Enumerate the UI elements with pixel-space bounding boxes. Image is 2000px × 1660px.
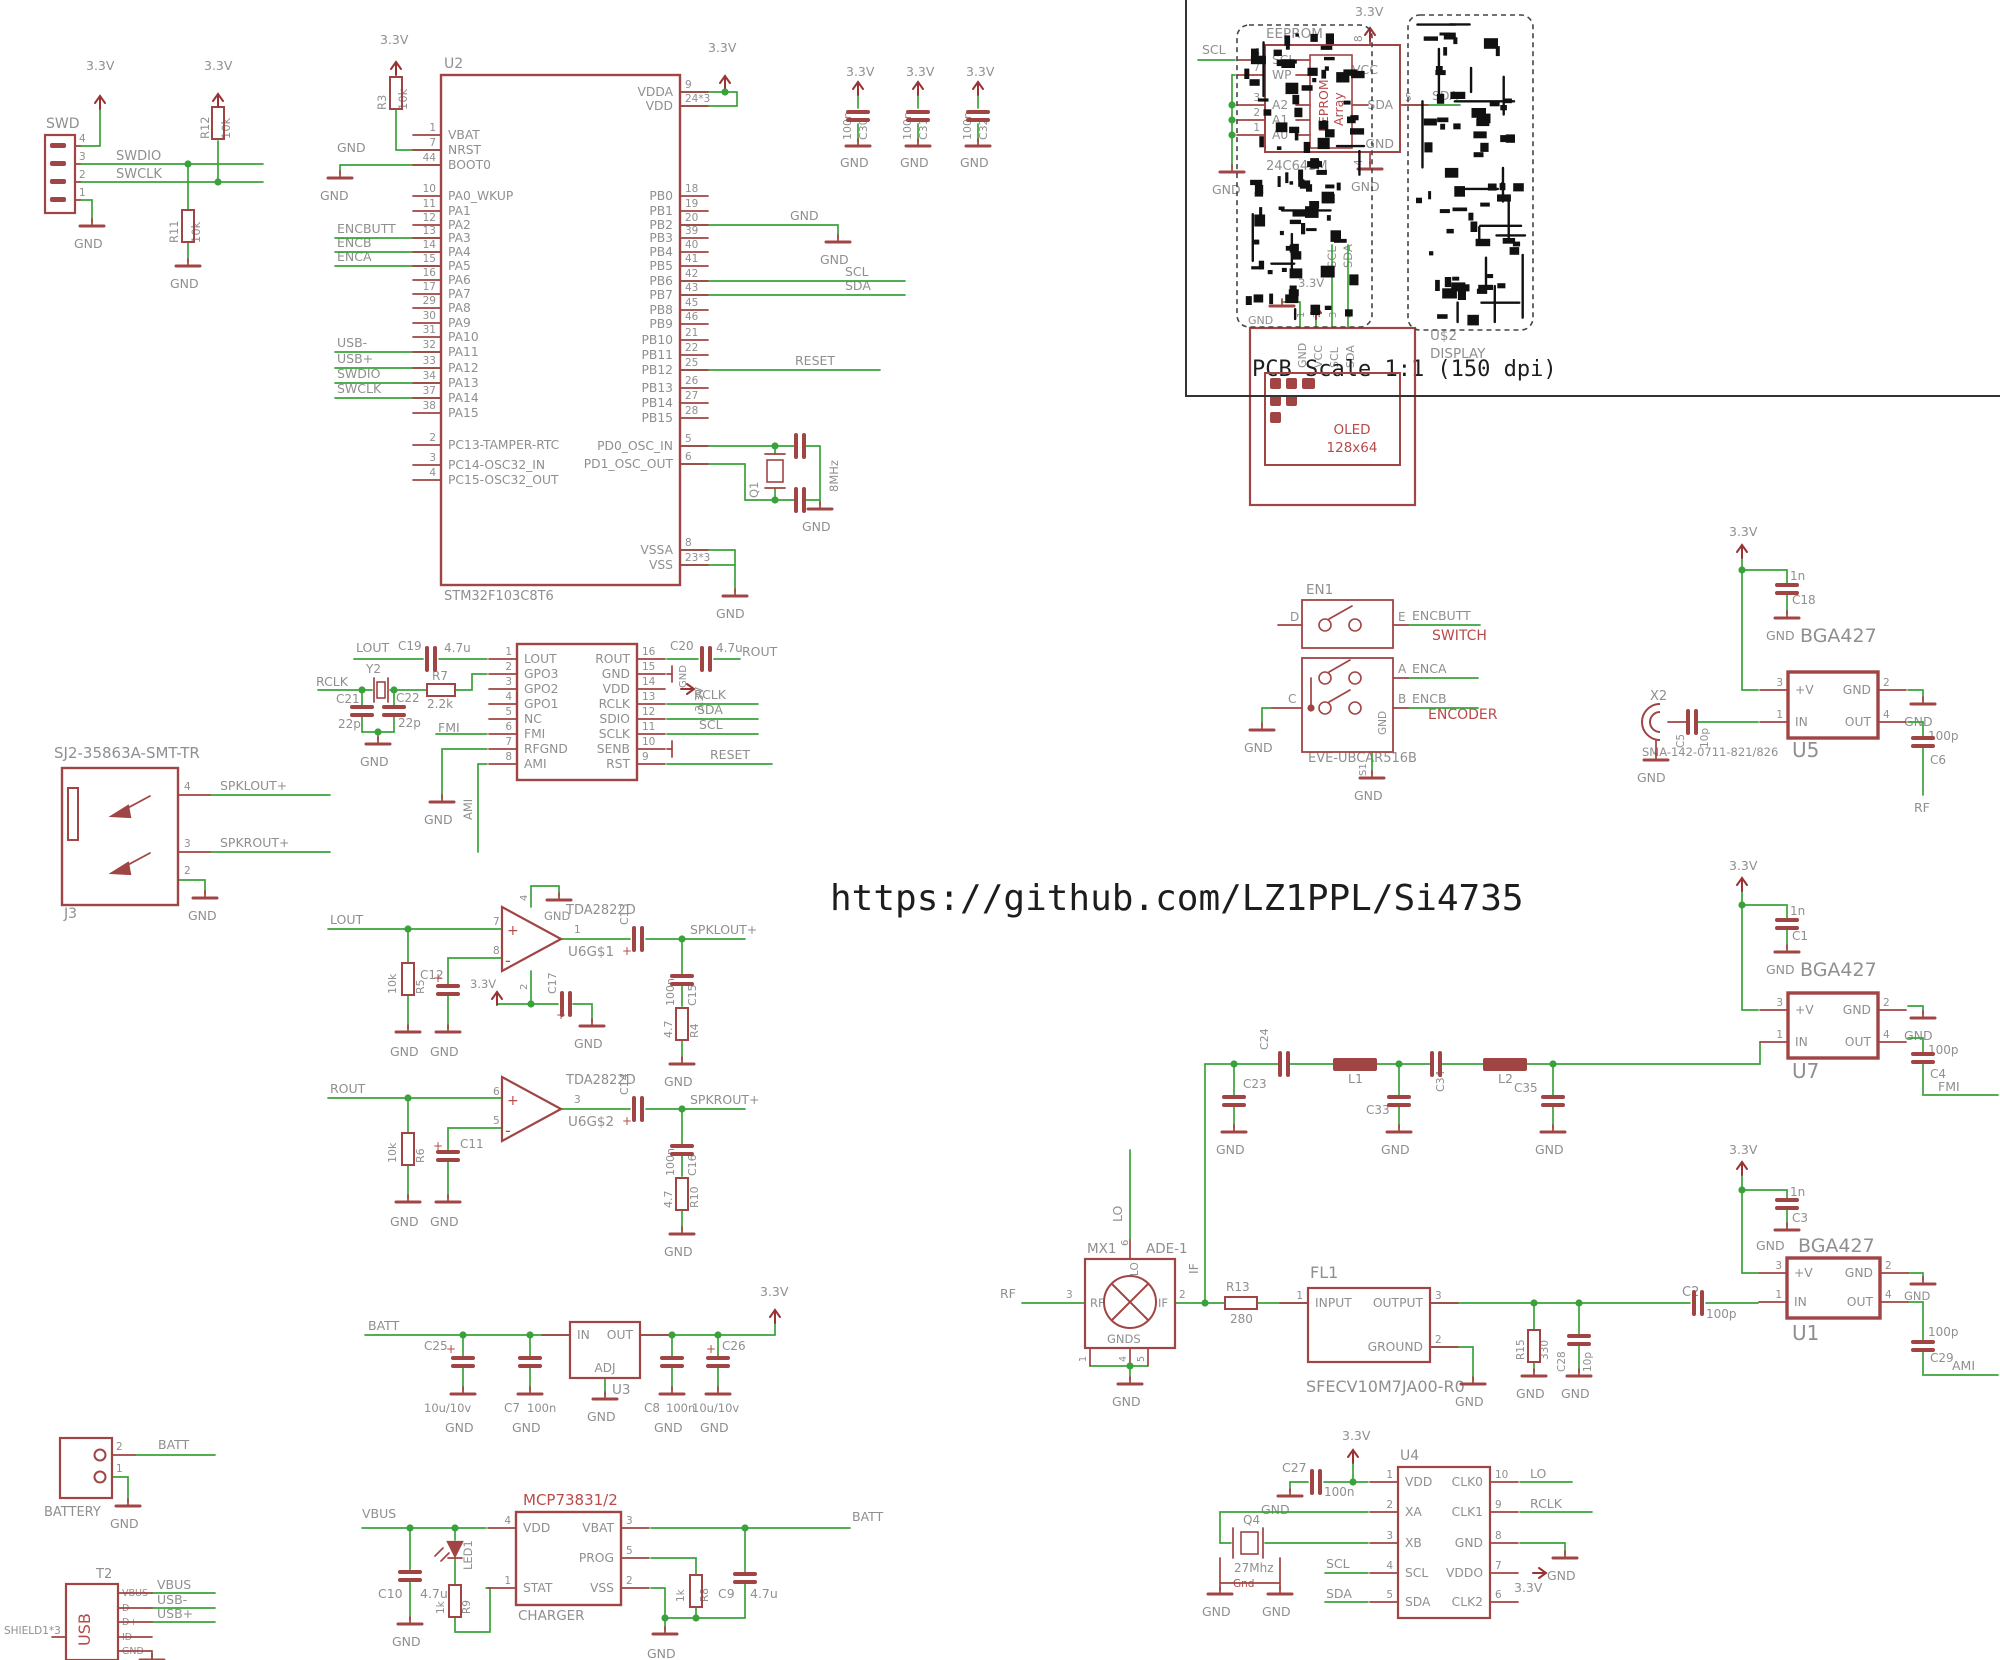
ic-si4735-tuner-pin-label: RFGND xyxy=(524,742,568,756)
ic-u2-stm32f103c8t6-pin-label: PC14-OSC32_IN xyxy=(448,458,545,472)
label-batt: BATT xyxy=(852,1509,884,1524)
wire xyxy=(1908,1273,1923,1280)
label-1k: 1k xyxy=(435,1600,447,1614)
label-gnd: GND xyxy=(1516,1386,1545,1401)
pcb-artwork xyxy=(1280,231,1284,235)
ic-u4-clockgen-pin-number: 10 xyxy=(1495,1469,1508,1481)
pcb-artwork xyxy=(1345,309,1353,316)
wire xyxy=(1742,557,1758,690)
junction-dot xyxy=(1738,1186,1745,1193)
label-gnd: GND xyxy=(1637,770,1666,785)
junction-dot xyxy=(1230,1060,1237,1067)
ic-u2-stm32f103c8t6-pin-label: PA10 xyxy=(448,330,479,344)
pcb-artwork xyxy=(1306,228,1317,231)
label-lout: LOUT xyxy=(330,912,364,927)
wire xyxy=(1527,1042,1760,1064)
label-r9: R9 xyxy=(461,1600,473,1614)
label-100n: 100n xyxy=(961,112,974,140)
component-body xyxy=(676,1008,688,1040)
wire xyxy=(455,674,487,690)
ic-u2-stm32f103c8t6-pin-number: 22 xyxy=(685,342,698,354)
ic-u2-stm32f103c8t6-pin-number: 40 xyxy=(685,239,698,251)
label-vbus: VBUS xyxy=(157,1577,191,1592)
ic-u2-stm32f103c8t6-pin-label: PA15 xyxy=(448,406,479,420)
label-10u/10v: 10u/10v xyxy=(692,1401,739,1415)
component-fill xyxy=(50,197,66,202)
label-2: 2 xyxy=(1179,1289,1186,1301)
label-gnds: GNDS xyxy=(1107,1332,1141,1346)
ic-si4735-tuner-pin-number: 3 xyxy=(505,676,512,688)
pcb-artwork xyxy=(1424,142,1432,152)
label-gnd: GND xyxy=(1756,1238,1785,1253)
label-swclk: SWCLK xyxy=(116,167,162,182)
component-fill xyxy=(1302,378,1315,389)
ic-u2-stm32f103c8t6-pin-number: 45 xyxy=(685,297,698,309)
label-c26: C26 xyxy=(722,1339,746,1353)
pcb-artwork xyxy=(1450,92,1465,99)
label-2: 2 xyxy=(519,984,530,990)
pcb-artwork xyxy=(1277,146,1282,150)
symbol-line xyxy=(1329,660,1350,672)
label-gnd: GND xyxy=(360,754,389,769)
label-1: 1 xyxy=(574,924,581,936)
pcb-artwork xyxy=(1453,123,1460,129)
ic-u4-clockgen-pin-number: 4 xyxy=(1386,1560,1393,1572)
ic-u1-bga427-pin-number: 3 xyxy=(1775,1260,1782,1272)
label-u1: U1 xyxy=(1792,1321,1819,1345)
pcb-artwork xyxy=(1453,208,1468,212)
wire xyxy=(178,880,205,894)
pcb-artwork xyxy=(1250,180,1262,185)
label-gnd: GND xyxy=(392,1634,421,1649)
junction-dot xyxy=(1228,101,1235,108)
ic-u2-stm32f103c8t6-pin-number: 3 xyxy=(429,452,436,464)
ic-u2-stm32f103c8t6-pin-label: PB14 xyxy=(642,396,674,410)
label-8: 8 xyxy=(1353,35,1365,42)
ic-fl1-filter-pin-label: GROUND xyxy=(1368,1340,1423,1354)
label-r8: R8 xyxy=(699,1588,711,1602)
label-r10: R10 xyxy=(688,1186,701,1208)
pcb-artwork xyxy=(1321,46,1333,50)
wire xyxy=(1742,570,1787,584)
label-spklout+: SPKLOUT+ xyxy=(690,922,757,937)
label-gnd: GND xyxy=(1354,788,1383,803)
label-c23: C23 xyxy=(1243,1077,1267,1091)
label-bga427: BGA427 xyxy=(1798,1235,1875,1257)
label-10k: 10k xyxy=(386,973,399,994)
ic-u2-stm32f103c8t6-pin-number: 42 xyxy=(685,268,698,280)
pcb-artwork xyxy=(1274,50,1282,56)
ic-charger-mcp73831-pin-label: VDD xyxy=(523,1521,550,1535)
junction-dot xyxy=(1349,1478,1356,1485)
component-body xyxy=(60,1438,112,1498)
component-circle xyxy=(1349,619,1361,631)
ic-u7-bga427-pin-number: 2 xyxy=(1883,997,1890,1009)
label-22p: 22p xyxy=(338,717,361,731)
label-3: 3 xyxy=(79,151,86,163)
pcb-artwork xyxy=(1318,138,1330,149)
component-body xyxy=(1241,1532,1258,1554)
ic-u2-stm32f103c8t6-pin-label: PB11 xyxy=(642,348,674,362)
label-swdio: SWDIO xyxy=(116,149,161,164)
component-fill xyxy=(1270,378,1281,389)
label-gnd: GND xyxy=(1351,179,1380,194)
junction-dot xyxy=(451,1524,458,1531)
label-22p: 22p xyxy=(398,716,421,730)
label-r6: R6 xyxy=(414,1148,427,1163)
pcb-artwork xyxy=(1259,136,1264,147)
pcb-artwork xyxy=(1474,152,1484,157)
label-1: 1 xyxy=(1078,1356,1089,1362)
junction-dot xyxy=(459,1331,466,1338)
ic-si4735-tuner-pin-number: 14 xyxy=(642,676,656,688)
ic-u3-regulator-pin-label: OUT xyxy=(607,1328,634,1342)
pcb-artwork xyxy=(1268,270,1273,274)
label-c29: C29 xyxy=(1930,1351,1954,1365)
label-c24: C24 xyxy=(1258,1028,1271,1050)
pcb-artwork xyxy=(1254,294,1264,302)
label-gnd: GND xyxy=(430,1214,459,1229)
ic-eeprom-24c64sm-pin-label: WP xyxy=(1272,68,1292,82)
pcb-artwork xyxy=(1496,46,1500,56)
label-+: + xyxy=(622,1114,632,1128)
ic-fl1-filter-pin-number: 3 xyxy=(1435,1290,1442,1302)
label-gnd: GND xyxy=(802,519,831,534)
ic-u2-stm32f103c8t6-pin-label: BOOT0 xyxy=(448,158,491,172)
pcb-artwork xyxy=(1258,98,1269,101)
ic-u4-clockgen-pin-label: CLK0 xyxy=(1452,1475,1483,1489)
pcb-artwork xyxy=(1429,251,1433,255)
component-body xyxy=(377,682,385,698)
label-3.3v: 3.3V xyxy=(380,32,409,47)
ic-fl1-filter-pin-number: 2 xyxy=(1435,1334,1442,1346)
junction-dot xyxy=(678,935,685,942)
ic-u1-bga427-pin-number: 4 xyxy=(1885,1289,1892,1301)
ic-u2-stm32f103c8t6-pin-number: 15 xyxy=(423,253,436,265)
component-body xyxy=(402,1133,414,1165)
ic-u2-stm32f103c8t6-pin-label: PA13 xyxy=(448,376,479,390)
label-gnd: GND xyxy=(574,1036,603,1051)
label-batt: BATT xyxy=(368,1318,400,1333)
label-c3: C3 xyxy=(1792,1211,1808,1225)
label-3: 3 xyxy=(574,1094,581,1106)
label-ami: AMI xyxy=(461,799,475,820)
label-gnd: GND xyxy=(320,188,349,203)
label-+: + xyxy=(706,1342,716,1356)
junction-dot xyxy=(1307,704,1314,711)
label-gnd: GND xyxy=(1547,1568,1576,1583)
label-c5: C5 xyxy=(1675,734,1687,748)
pcb-artwork xyxy=(1255,192,1263,197)
pcb-artwork xyxy=(1298,179,1304,187)
ic-u2-stm32f103c8t6-pin-label: PC15-OSC32_OUT xyxy=(448,473,559,487)
ic-u2-stm32f103c8t6-pin-label: PA12 xyxy=(448,361,479,375)
pcb-artwork xyxy=(1453,37,1457,44)
pcb-artwork xyxy=(1428,191,1431,199)
label-c16: C16 xyxy=(686,1154,699,1176)
pcb-artwork xyxy=(1285,172,1288,183)
ic-u7-bga427-pin-label: GND xyxy=(1843,1003,1871,1017)
ic-si4735-tuner-pin-label: SCLK xyxy=(599,727,631,741)
pcb-artwork xyxy=(1294,108,1302,118)
label-c25: C25 xyxy=(424,1339,448,1353)
ic-u2-stm32f103c8t6-pin-label: PA1 xyxy=(448,204,471,218)
schematic-canvas: SWD3.3V4321SWDIOSWCLKGND3.3VR1210kGNDR11… xyxy=(0,0,2000,1660)
ic-u1-bga427-pin-number: 1 xyxy=(1775,1289,1782,1301)
pcb-artwork xyxy=(1454,186,1465,197)
pcb-artwork xyxy=(1497,283,1505,288)
ic-u2-stm32f103c8t6-pin-label: PB1 xyxy=(649,204,673,218)
ic-si4735-tuner-pin-number: 1 xyxy=(505,646,512,658)
pcb-artwork xyxy=(1289,127,1299,133)
pcb-artwork xyxy=(1472,108,1487,118)
label-c15: C15 xyxy=(686,984,699,1006)
label-1k: 1k xyxy=(675,1588,687,1602)
label-j3: J3 xyxy=(63,906,77,922)
schematic-svg: SWD3.3V4321SWDIOSWCLKGND3.3VR1210kGNDR11… xyxy=(0,0,2000,1660)
label-10u/10v: 10u/10v xyxy=(424,1401,471,1415)
ic-u2-stm32f103c8t6-pin-number: 21 xyxy=(685,327,698,339)
label-4: 4 xyxy=(79,133,86,145)
label-gnd: GND xyxy=(900,155,929,170)
ic-u4-clockgen-pin-number: 6 xyxy=(1495,1589,1502,1601)
component-circle xyxy=(1349,672,1361,684)
wire xyxy=(1262,708,1272,726)
label-3.3v: 3.3V xyxy=(470,977,496,991)
label-+: + xyxy=(507,1093,519,1109)
wire xyxy=(1742,1190,1787,1199)
ic-u2-stm32f103c8t6-pin-number: 10 xyxy=(423,183,436,195)
label-c1: C1 xyxy=(1792,929,1808,943)
ic-charger-mcp73831-pin-number: 1 xyxy=(504,1575,511,1587)
ic-u2-stm32f103c8t6-pin-label: PB3 xyxy=(649,231,673,245)
ic-charger-mcp73831-pin-label: PROG xyxy=(579,1551,614,1565)
label-mx1: MX1 xyxy=(1087,1241,1117,1257)
ic-u2-stm32f103c8t6-pin-label: PB10 xyxy=(642,333,674,347)
label-gnd: GND xyxy=(188,908,217,923)
ic-u2-stm32f103c8t6-pin-number: 33 xyxy=(423,355,436,367)
label-3: 3 xyxy=(1328,312,1339,318)
ic-u4-clockgen-pin-label: XA xyxy=(1405,1505,1422,1519)
ic-u2-stm32f103c8t6-pin-label: PB9 xyxy=(649,317,673,331)
ic-u2-stm32f103c8t6-pin-number: 39 xyxy=(685,225,698,237)
label-rout: ROUT xyxy=(742,644,778,659)
label-10k: 10k xyxy=(386,1142,399,1163)
label-r3: R3 xyxy=(375,95,389,110)
component-body xyxy=(402,963,414,995)
label-adj: ADJ xyxy=(595,1361,616,1375)
label-gnd: GND xyxy=(1766,962,1795,977)
pcb-artwork xyxy=(1349,274,1358,285)
label-c: C xyxy=(1288,692,1296,706)
junction-dot xyxy=(358,686,365,693)
ic-si4735-tuner-pin-label: GPO2 xyxy=(524,682,558,696)
wire xyxy=(651,1558,696,1575)
ic-u5-bga427-pin-number: 3 xyxy=(1776,677,1783,689)
ic-u2-stm32f103c8t6-pin-label: PA7 xyxy=(448,287,471,301)
label-battery: BATTERY xyxy=(44,1505,101,1520)
ic-u2-stm32f103c8t6-pin-number: 28 xyxy=(685,405,698,417)
ic-u2-stm32f103c8t6-pin-label: PB5 xyxy=(649,259,673,273)
junction-dot xyxy=(404,925,411,932)
pcb-artwork xyxy=(1325,306,1332,310)
component-body xyxy=(1302,658,1393,752)
ic-u2-stm32f103c8t6-pin-number: 4 xyxy=(429,467,436,479)
ic-u2-stm32f103c8t6-pin-label: PA9 xyxy=(448,316,471,330)
pcb-artwork xyxy=(1259,207,1262,215)
pcb-artwork xyxy=(1326,33,1334,44)
label-c11: C11 xyxy=(460,1137,484,1151)
label-u3: U3 xyxy=(612,1382,630,1398)
ic-si4735-tuner-pin-label: SDIO xyxy=(599,712,630,726)
label-bga427: BGA427 xyxy=(1800,959,1877,981)
pcb-artwork xyxy=(1278,176,1281,187)
label-gnd: GND xyxy=(654,1420,683,1435)
label-gnd: GND xyxy=(1766,628,1795,643)
label-spkrout+: SPKROUT+ xyxy=(220,835,289,850)
pcb-artwork xyxy=(1476,118,1489,126)
ic-u2-stm32f103c8t6-pin-label: PB0 xyxy=(649,189,673,203)
label-c33: C33 xyxy=(1366,1103,1390,1117)
ic-u2-stm32f103c8t6-pin-label: PA6 xyxy=(448,273,471,287)
label-4.7u: 4.7u xyxy=(716,641,743,655)
pcb-artwork xyxy=(1487,274,1493,278)
junction-dot xyxy=(374,728,381,735)
ic-u5-bga427-pin-label: OUT xyxy=(1845,715,1872,729)
pcb-artwork xyxy=(1468,213,1473,221)
label-swd: SWD xyxy=(46,116,80,132)
label-5: 5 xyxy=(493,1115,500,1127)
pcb-artwork xyxy=(1292,95,1299,104)
pcb-artwork xyxy=(1347,117,1356,124)
label-gnd: GND xyxy=(1535,1142,1564,1157)
label-vbus: VBUS xyxy=(362,1506,396,1521)
label-100n: 100n xyxy=(841,112,854,140)
junction-dot xyxy=(1395,1060,1402,1067)
label-encoder: ENCODER xyxy=(1428,707,1498,723)
label-100p: 100p xyxy=(1928,1325,1959,1339)
ic-eeprom-24c64sm-pin-number: 2 xyxy=(1253,107,1260,119)
ic-u7-bga427-pin-label: IN xyxy=(1795,1035,1808,1049)
label-gnd: Gnd xyxy=(1233,1578,1254,1590)
label-c13: C13 xyxy=(618,903,631,925)
pcb-artwork xyxy=(1292,60,1297,64)
pcb-artwork xyxy=(1310,34,1317,42)
wire xyxy=(1742,890,1758,1010)
ic-si4735-tuner-pin-number: 5 xyxy=(505,706,512,718)
junction-dot xyxy=(1228,131,1235,138)
label-sj2-35863a-smt-tr: SJ2-35863A-SMT-TR xyxy=(54,744,200,762)
pcb-artwork xyxy=(1476,239,1491,246)
pcb-artwork xyxy=(1324,57,1335,60)
label-l1: L1 xyxy=(1348,1071,1363,1086)
label-gnd: GND xyxy=(1365,136,1394,151)
label-3.3v: 3.3V xyxy=(1729,858,1758,873)
ic-u1-bga427-pin-label: IN xyxy=(1794,1295,1807,1309)
label-gnd: GND xyxy=(1381,1142,1410,1157)
junction-dot xyxy=(1228,116,1235,123)
ic-si4735-tuner-pin-number: 15 xyxy=(642,661,655,673)
label-batt: BATT xyxy=(158,1437,190,1452)
ic-u4-clockgen-pin-number: 9 xyxy=(1495,1499,1502,1511)
label-gnd: GND xyxy=(664,1074,693,1089)
pcb-artwork xyxy=(1319,121,1329,130)
label-4.7u: 4.7u xyxy=(444,641,471,655)
ic-u2-stm32f103c8t6-pin-number: 11 xyxy=(423,198,436,210)
label-100n: 100n xyxy=(666,1401,695,1415)
pcb-artwork xyxy=(1254,240,1259,245)
label-c8: C8 xyxy=(644,1401,660,1415)
pcb-artwork xyxy=(1246,296,1252,305)
ic-u7-bga427-pin-number: 4 xyxy=(1883,1029,1890,1041)
pcb-artwork xyxy=(1435,280,1440,291)
ic-si4735-tuner-pin-label: FMI xyxy=(524,727,545,741)
ic-si4735-tuner-pin-label: GND xyxy=(602,667,630,681)
ic-u5-bga427-pin-label: +V xyxy=(1795,683,1814,697)
ic-u4-clockgen-pin-number: 3 xyxy=(1386,1530,1393,1542)
component-circle xyxy=(1319,702,1331,714)
pcb-artwork xyxy=(1286,83,1299,94)
ic-u5-bga427-pin-label: GND xyxy=(1843,683,1871,697)
label-c9: C9 xyxy=(718,1586,735,1601)
label-100n: 100n xyxy=(527,1401,556,1415)
label-gnd: GND xyxy=(1216,1142,1245,1157)
label-27mhz: 27Mhz xyxy=(1234,1561,1274,1575)
pcb-artwork xyxy=(1350,128,1364,134)
ic-eeprom-24c64sm-pin-number: 1 xyxy=(1253,122,1260,134)
junction-dot xyxy=(668,1331,675,1338)
label-gnd: GND xyxy=(700,1420,729,1435)
label-bga427: BGA427 xyxy=(1800,625,1877,647)
label-gnd: GND xyxy=(337,140,366,155)
label-3: 3 xyxy=(184,838,191,850)
wire xyxy=(112,1477,128,1502)
label-encbutt: ENCBUTT xyxy=(1412,608,1471,623)
pcb-board-outline xyxy=(1408,15,1533,330)
pcb-artwork xyxy=(1312,78,1316,82)
label-reset: RESET xyxy=(710,747,750,762)
pcb-artwork xyxy=(1301,223,1305,234)
ic-u1-bga427-pin-number: 2 xyxy=(1885,1260,1892,1272)
ic-u4-clockgen-pin-label: SCL xyxy=(1405,1566,1428,1580)
junction-dot xyxy=(526,1331,533,1338)
label-3.3v: 3.3V xyxy=(966,64,995,79)
label-gnd: GND xyxy=(1244,740,1273,755)
ic-u2-stm32f103c8t6-pin-label: VSS xyxy=(649,558,673,572)
label-+: + xyxy=(446,1342,456,1356)
label-gnd: GND xyxy=(1262,1604,1291,1619)
label-lo: LO xyxy=(1530,1466,1547,1481)
junction-dot xyxy=(1530,1299,1537,1306)
ic-u5-bga427-pin-label: IN xyxy=(1795,715,1808,729)
label-sfecv10m7ja00-r0: SFECV10M7JA00-R0 xyxy=(1306,1377,1465,1396)
ic-u2-stm32f103c8t6-pin-number: 30 xyxy=(423,310,436,322)
pcb-artwork xyxy=(1331,230,1342,242)
component-body xyxy=(767,460,783,482)
label-10p: 10p xyxy=(1582,1352,1594,1372)
junction-dot xyxy=(1201,1299,1208,1306)
label-gnd: GND xyxy=(840,155,869,170)
label-3.3v: 3.3V xyxy=(1729,1142,1758,1157)
pcb-artwork xyxy=(1480,203,1490,207)
ic-u7-bga427-pin-label: +V xyxy=(1795,1003,1814,1017)
symbol-triangle xyxy=(112,806,130,817)
ic-u2-stm32f103c8t6-pin-label: PA8 xyxy=(448,301,471,315)
label-led1: LED1 xyxy=(461,1540,475,1570)
ic-u4-clockgen-pin-number: 7 xyxy=(1495,1560,1502,1572)
pcb-artwork xyxy=(1442,288,1457,298)
ic-u4-clockgen-pin-label: CLK1 xyxy=(1452,1505,1483,1519)
